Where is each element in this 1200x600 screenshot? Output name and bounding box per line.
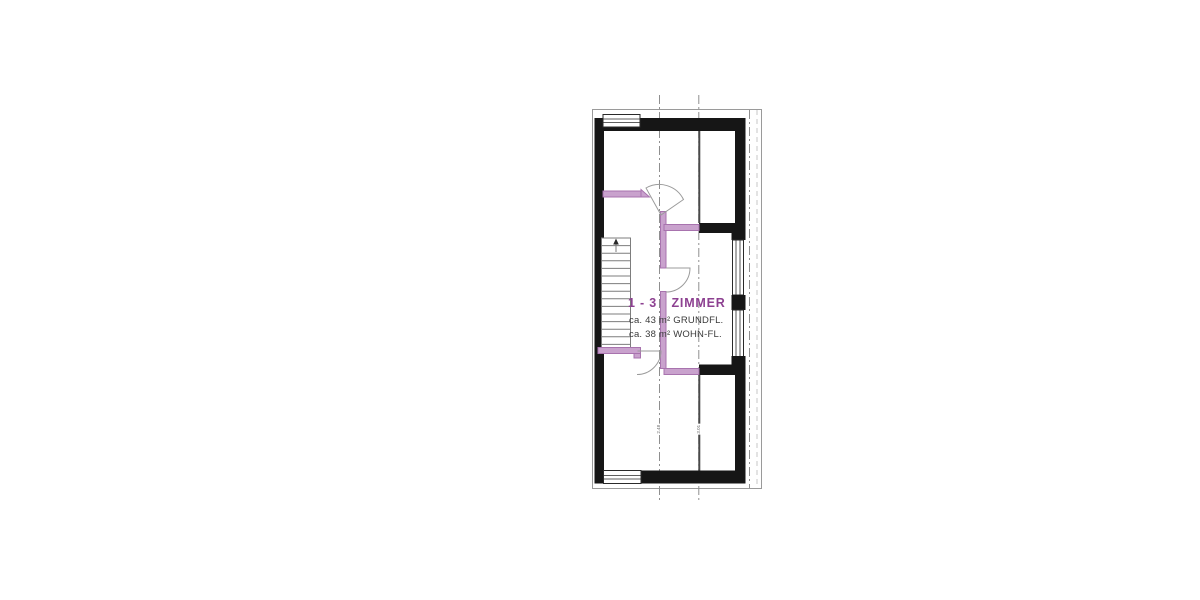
window-right-1 <box>733 240 744 295</box>
wall-spandrel-lower <box>699 365 746 376</box>
unit-wall-stair-landing <box>598 348 641 354</box>
window-right-1-cap-top <box>732 232 746 240</box>
living-area-label: ca. 38 m² WOHN-FL. <box>629 329 722 340</box>
window-right-pier <box>732 295 746 310</box>
window-right-2 <box>733 310 744 358</box>
wall-spandrel-upper <box>699 223 746 233</box>
door-swing-room <box>666 268 690 292</box>
unit-wall-horizontal-lower <box>664 369 699 375</box>
unit-wall-vertical-upper <box>661 212 667 269</box>
floor-plan-drawing <box>0 0 1200 600</box>
gross-area-label: ca. 43 m² GRUNDFL. <box>629 315 723 326</box>
unit-number-label: 1 - 3 <box>628 296 651 310</box>
wall-right-lower <box>735 375 746 484</box>
staircase <box>602 238 631 352</box>
window-right-2-cap-bottom <box>732 356 746 365</box>
door-swing-entry <box>646 184 684 215</box>
dimension-mark-left: 2.48 <box>657 424 662 435</box>
unit-wall-entry-top-tip <box>641 190 650 198</box>
unit-wall-stair-stub <box>634 354 641 359</box>
floor-plan-canvas: 1 - 3 ZIMMER ca. 43 m² GRUNDFL. ca. 38 m… <box>0 0 1200 600</box>
unit-wall-horizontal-upper <box>664 225 699 231</box>
unit-wall-entry-top <box>603 191 641 197</box>
window-top <box>603 115 640 128</box>
wall-right-upper <box>735 118 746 232</box>
dimension-mark-right: 3.01 <box>697 424 702 435</box>
unit-type-label: ZIMMER <box>672 296 726 310</box>
window-bottom <box>604 471 642 484</box>
